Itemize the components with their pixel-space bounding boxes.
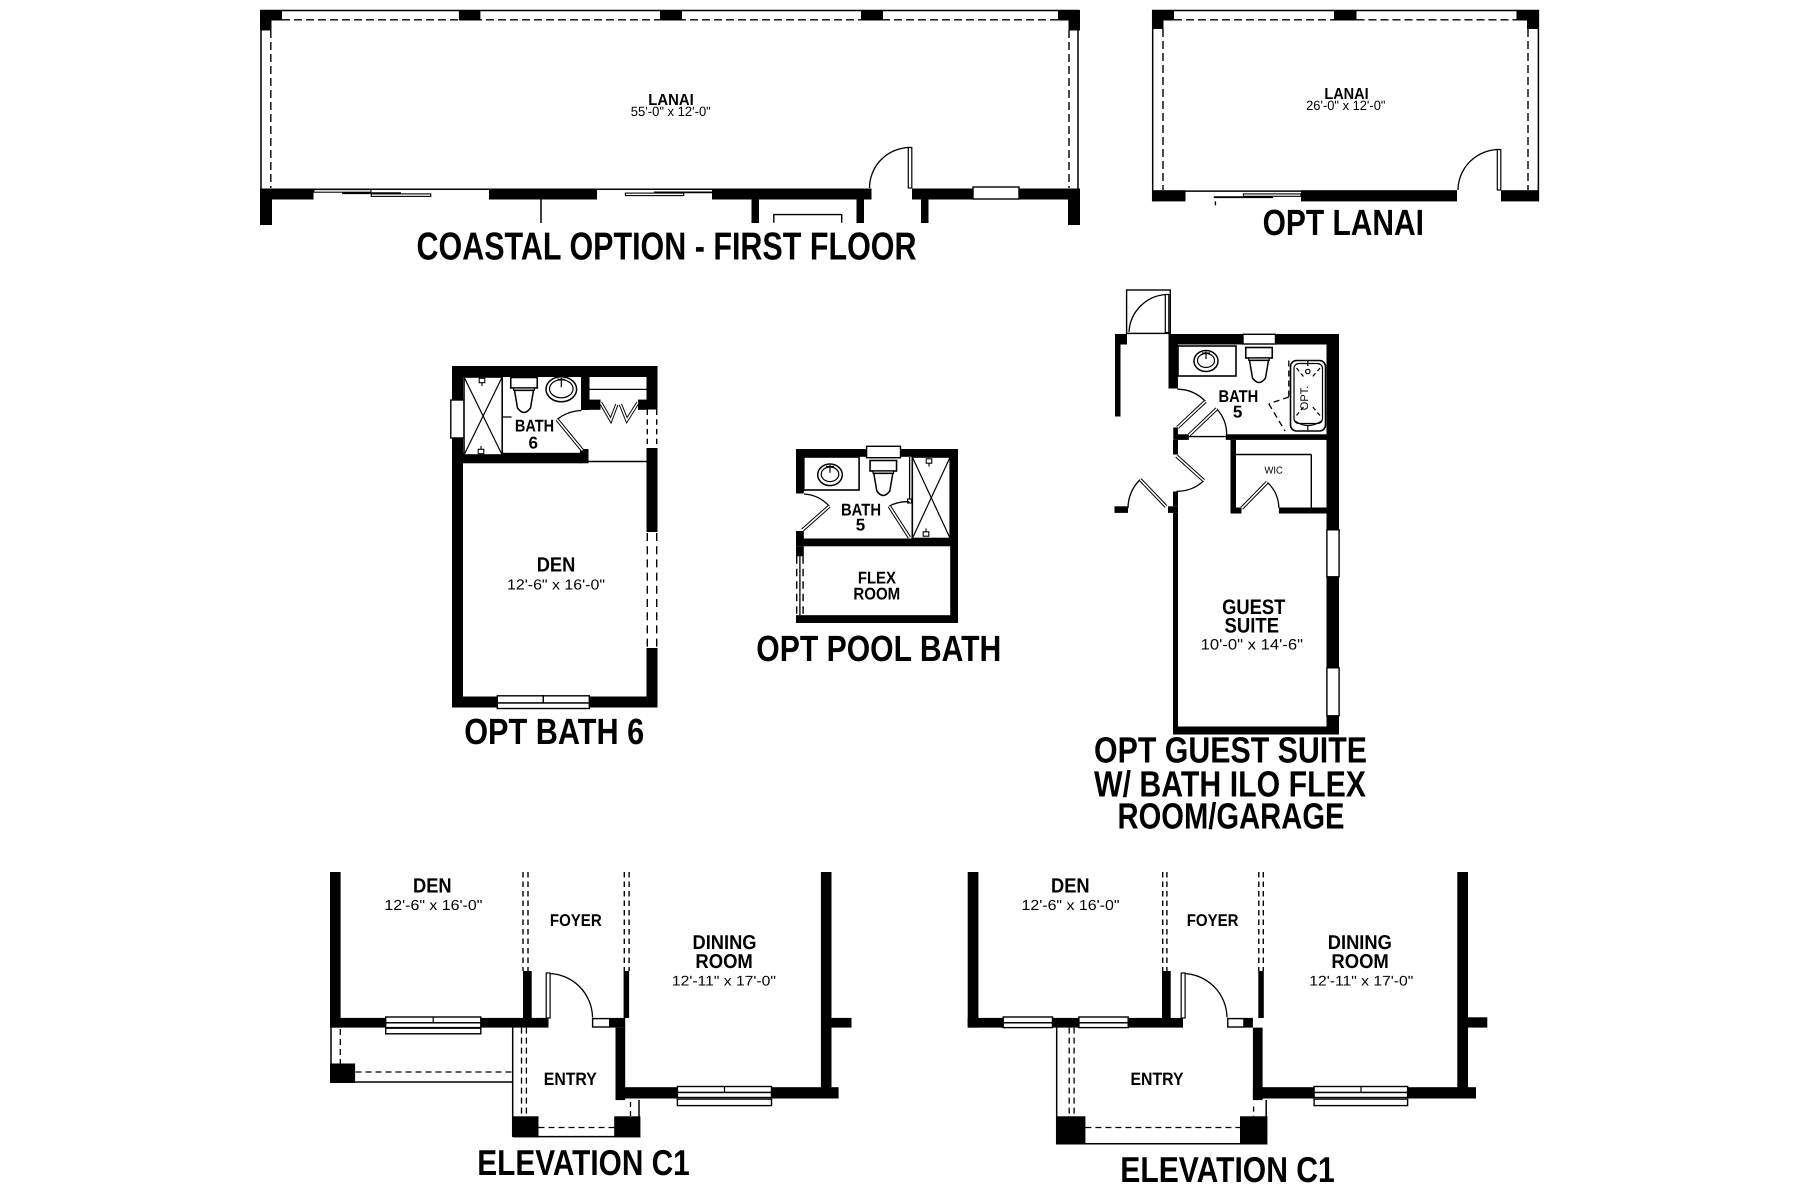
svg-text:12'-11" x 17'-0": 12'-11" x 17'-0": [1309, 973, 1413, 989]
svg-text:26'-0" x 12'-0": 26'-0" x 12'-0": [1306, 98, 1385, 113]
svg-text:ENTRY: ENTRY: [544, 1069, 597, 1089]
svg-text:12'-6" x 16'-0": 12'-6" x 16'-0": [1022, 898, 1120, 914]
svg-text:FOYER: FOYER: [550, 911, 602, 930]
svg-text:OPT POOL BATH: OPT POOL BATH: [756, 628, 1001, 669]
svg-text:5: 5: [856, 515, 865, 534]
svg-text:SUITE: SUITE: [1225, 615, 1280, 638]
svg-text:FOYER: FOYER: [1187, 911, 1239, 930]
svg-text:6: 6: [528, 434, 537, 453]
svg-text:OPT.: OPT.: [1299, 386, 1311, 410]
svg-text:ELEVATION C1: ELEVATION C1: [477, 1142, 689, 1183]
svg-text:DEN: DEN: [537, 554, 576, 577]
svg-text:12'-6" x 16'-0": 12'-6" x 16'-0": [507, 578, 605, 594]
svg-text:ROOM: ROOM: [853, 584, 900, 603]
svg-text:12'-6" x 16'-0": 12'-6" x 16'-0": [384, 898, 482, 914]
svg-text:10'-0" x 14'-6": 10'-0" x 14'-6": [1201, 636, 1303, 653]
svg-text:OPT BATH 6: OPT BATH 6: [464, 711, 644, 752]
svg-text:12'-11" x 17'-0": 12'-11" x 17'-0": [672, 973, 776, 989]
svg-text:COASTAL OPTION - FIRST FLOOR: COASTAL OPTION - FIRST FLOOR: [417, 226, 917, 269]
svg-text:DEN: DEN: [413, 875, 452, 898]
svg-text:WIC: WIC: [1265, 465, 1283, 476]
svg-text:DEN: DEN: [1051, 875, 1090, 898]
svg-text:OPT LANAI: OPT LANAI: [1263, 202, 1424, 243]
svg-text:ELEVATION C1: ELEVATION C1: [1120, 1149, 1335, 1190]
svg-text:ROOM/GARAGE: ROOM/GARAGE: [1118, 796, 1345, 837]
svg-text:ENTRY: ENTRY: [1131, 1069, 1184, 1089]
svg-text:55'-0" x 12'-0": 55'-0" x 12'-0": [631, 104, 711, 119]
svg-text:ROOM: ROOM: [1331, 951, 1388, 973]
svg-text:ROOM: ROOM: [695, 951, 752, 973]
svg-text:5: 5: [1233, 402, 1242, 421]
